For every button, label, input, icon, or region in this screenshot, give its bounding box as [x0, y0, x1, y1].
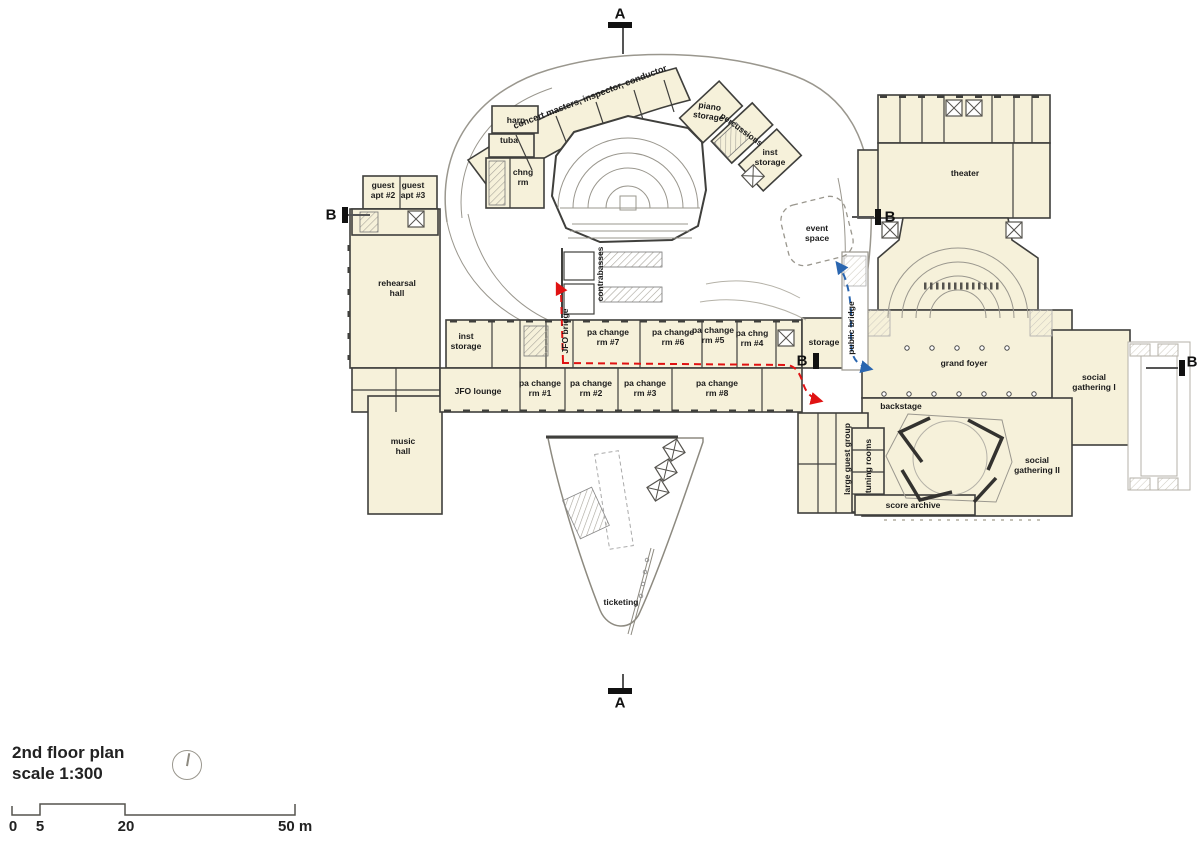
section-marker-b-mid: B — [797, 353, 808, 370]
scale-label-50m: 50 m — [278, 818, 312, 835]
section-marker-b-right-top: B — [885, 209, 896, 226]
plan-scale-line: scale 1:300 — [12, 763, 124, 784]
section-marker-b-left: B — [326, 207, 337, 224]
section-marker-a-bottom: A — [615, 695, 626, 712]
floor-plan-canvas: concert masters, inspector, conductor ha… — [0, 0, 1200, 841]
north-compass-icon — [172, 750, 202, 780]
scale-label-5: 5 — [36, 818, 44, 835]
floor-plan-drawing — [0, 0, 1200, 841]
scale-label-20: 20 — [118, 818, 135, 835]
scale-bar — [0, 795, 340, 819]
section-marker-b-right-far: B — [1187, 354, 1198, 371]
scale-label-0: 0 — [9, 818, 17, 835]
plan-title-line1: 2nd floor plan — [12, 742, 124, 763]
plan-title: 2nd floor plan scale 1:300 — [12, 742, 124, 785]
section-marker-a-top: A — [615, 6, 626, 23]
